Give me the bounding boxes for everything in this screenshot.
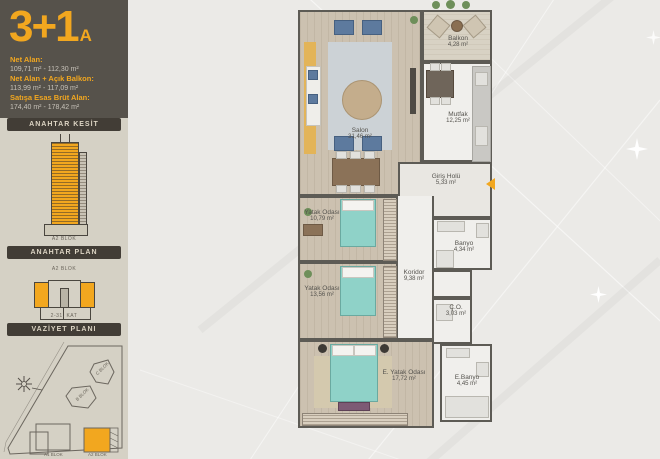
balcony-table <box>451 20 463 32</box>
kesit-block-label: A2 BLOK <box>34 236 94 242</box>
room-name: Yatak Odası <box>304 285 339 292</box>
room-label-balkon: Balkon 4,28 m² <box>448 35 468 49</box>
room-label-e-banyo: E.Banyo 4,45 m² <box>455 374 480 388</box>
dining-chair <box>336 151 347 159</box>
keyplan-block-label: A2 BLOK <box>34 266 94 272</box>
room-name: Giriş Holü <box>432 173 461 180</box>
bed-pillow <box>342 200 374 211</box>
tv-unit <box>410 68 416 114</box>
room-label-koridor: Koridor 9,38 m² <box>404 269 425 283</box>
site-plan-drawing <box>0 336 128 459</box>
unit-summary-panel: 3+1A Net Alan: 109,71 m² - 112,30 m² Net… <box>0 0 128 118</box>
stat-value: 109,71 m² - 112,30 m² <box>10 65 94 74</box>
room-label-e-yatak-odasi: E. Yatak Odası 17,72 m² <box>382 369 425 383</box>
bathroom-sink <box>446 348 470 358</box>
unit-type: 3+1 <box>9 2 78 51</box>
room-area: 4,28 m² <box>448 42 468 49</box>
room-label-co: Ç.O. 3,03 m² <box>446 304 466 318</box>
room-name: Ç.O. <box>446 304 466 311</box>
room-name: Yatak Odası <box>304 209 339 216</box>
room-area: 13,56 m² <box>304 292 339 299</box>
room-label-salon: Salon 31,46 m² <box>348 127 372 141</box>
stat-value: 113,99 m² - 117,09 m² <box>10 84 94 93</box>
keyplan-unit-highlight-right <box>80 282 95 308</box>
building-section-base <box>44 224 88 236</box>
room-area: 9,38 m² <box>404 276 425 283</box>
room-label-giris-holu: Giriş Holü 5,33 m² <box>432 173 461 187</box>
stove <box>475 126 488 146</box>
keyplan-floor-label: 2-31. KAT <box>34 313 94 319</box>
room-closet <box>432 270 472 298</box>
room-area: 12,25 m² <box>446 118 470 125</box>
room-area: 31,46 m² <box>348 134 372 141</box>
toilet <box>476 223 489 238</box>
planter <box>446 0 455 9</box>
room-name: E.Banyo <box>455 374 480 381</box>
room-name: E. Yatak Odası <box>382 369 425 376</box>
bed-pillow <box>342 267 374 278</box>
stat-brut-alan: Satışa Esas Brüt Alan: 174,40 m² - 178,4… <box>10 93 94 112</box>
desk <box>303 224 323 236</box>
kitchen-table <box>426 70 454 98</box>
site-block-label-a1: A1 BLOK <box>44 452 63 457</box>
room-label-yatak-odasi-1: Yatak Odası 10,79 m² <box>304 209 339 223</box>
room-area: 5,33 m² <box>432 180 461 187</box>
stat-value: 174,40 m² - 178,42 m² <box>10 103 94 112</box>
armchair <box>334 20 354 35</box>
sofa-pillow <box>308 94 318 104</box>
sidebar: 3+1A Net Alan: 109,71 m² - 112,30 m² Net… <box>0 0 128 459</box>
section-header-anahtar-kesit: ANAHTAR KESİT <box>7 118 121 131</box>
bed-pillow <box>354 345 376 356</box>
unit-type-title: 3+1A <box>9 2 92 52</box>
kitchen-chair <box>441 97 451 105</box>
dining-chair <box>364 185 375 193</box>
bed-pillow <box>332 345 354 356</box>
room-area: 17,72 m² <box>382 376 425 383</box>
room-label-yatak-odasi-2: Yatak Odası 13,56 m² <box>304 285 339 299</box>
room-area: 10,79 m² <box>304 216 339 223</box>
room-name: Koridor <box>404 269 425 276</box>
floor-plan: Salon 31,46 m² Balkon 4,28 m² Mutfak 12,… <box>298 8 492 428</box>
bed-bench <box>338 402 370 411</box>
keyplan-core-bar <box>60 288 69 308</box>
room-koridor <box>396 196 434 340</box>
armchair <box>362 20 382 35</box>
shower <box>436 250 454 268</box>
key-plan-icon <box>34 280 94 310</box>
plant <box>304 270 312 278</box>
stat-label: Net Alan + Açık Balkon: <box>10 74 94 84</box>
room-name: Banyo <box>454 240 474 247</box>
room-area: 4,34 m² <box>454 247 474 254</box>
dining-chair <box>350 151 361 159</box>
building-section-highlight <box>51 142 79 226</box>
kitchen-chair <box>441 63 451 71</box>
section-header-vaziyet-plani: VAZİYET PLANI <box>7 323 121 336</box>
site-block-label-a2: A2 BLOK <box>88 452 107 457</box>
stat-label: Satışa Esas Brüt Alan: <box>10 93 94 103</box>
entrance-arrow-icon <box>486 178 495 190</box>
kitchen-chair <box>430 97 440 105</box>
bathroom-sink <box>437 221 465 232</box>
wardrobe <box>302 413 408 426</box>
planter <box>462 1 470 9</box>
bathtub <box>445 396 489 418</box>
kitchen-chair <box>430 63 440 71</box>
nightstand-lamp <box>318 344 327 353</box>
stat-net-alan-balkon: Net Alan + Açık Balkon: 113,99 m² - 117,… <box>10 74 94 93</box>
plant <box>410 16 418 24</box>
room-label-mutfak: Mutfak 12,25 m² <box>446 111 470 125</box>
keyplan-unit-highlight-left <box>34 282 49 308</box>
dining-chair <box>364 151 375 159</box>
nightstand-lamp <box>380 344 389 353</box>
wardrobe <box>383 199 397 261</box>
dining-table <box>332 158 380 186</box>
sofa-pillow <box>308 70 318 80</box>
kitchen-sink <box>475 72 488 86</box>
wardrobe <box>383 266 397 338</box>
room-area: 4,45 m² <box>455 381 480 388</box>
room-name: Salon <box>348 127 372 134</box>
room-name: Balkon <box>448 35 468 42</box>
planter <box>432 1 440 9</box>
round-coffee-table <box>342 80 382 120</box>
room-name: Mutfak <box>446 111 470 118</box>
stat-label: Net Alan: <box>10 55 94 65</box>
section-header-anahtar-plan: ANAHTAR PLAN <box>7 246 121 259</box>
room-label-banyo: Banyo 4,34 m² <box>454 240 474 254</box>
area-stats: Net Alan: 109,71 m² - 112,30 m² Net Alan… <box>0 55 94 112</box>
room-area: 3,03 m² <box>446 311 466 318</box>
unit-variant: A <box>80 26 92 45</box>
page: 3+1A Net Alan: 109,71 m² - 112,30 m² Net… <box>0 0 660 459</box>
tower-antenna <box>60 134 70 142</box>
dining-chair <box>350 185 361 193</box>
stat-net-alan: Net Alan: 109,71 m² - 112,30 m² <box>10 55 94 74</box>
building-section-core <box>79 152 87 232</box>
dining-chair <box>336 185 347 193</box>
